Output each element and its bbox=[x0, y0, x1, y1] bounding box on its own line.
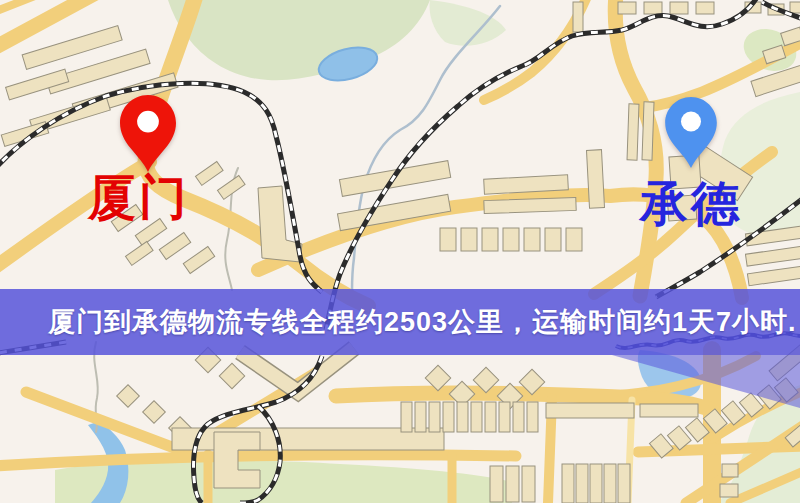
destination-city-label: 承德 bbox=[640, 180, 742, 228]
red-pin-shape bbox=[120, 95, 176, 172]
blue-pin-icon[interactable] bbox=[665, 97, 717, 168]
red-pin-hole bbox=[137, 111, 159, 133]
route-map[interactable]: 厦门到承德物流专线全程约2503公里，运输时间约1天7小时. 厦门 承德 bbox=[0, 0, 800, 503]
map-canvas[interactable] bbox=[0, 0, 800, 503]
route-info-text: 厦门到承德物流专线全程约2503公里，运输时间约1天7小时. bbox=[48, 304, 797, 340]
red-pin-icon[interactable] bbox=[120, 95, 176, 172]
route-info-banner: 厦门到承德物流专线全程约2503公里，运输时间约1天7小时. bbox=[0, 289, 800, 355]
origin-city-label: 厦门 bbox=[88, 174, 190, 222]
blue-pin-shape bbox=[665, 97, 717, 168]
blue-pin-hole bbox=[681, 112, 701, 132]
